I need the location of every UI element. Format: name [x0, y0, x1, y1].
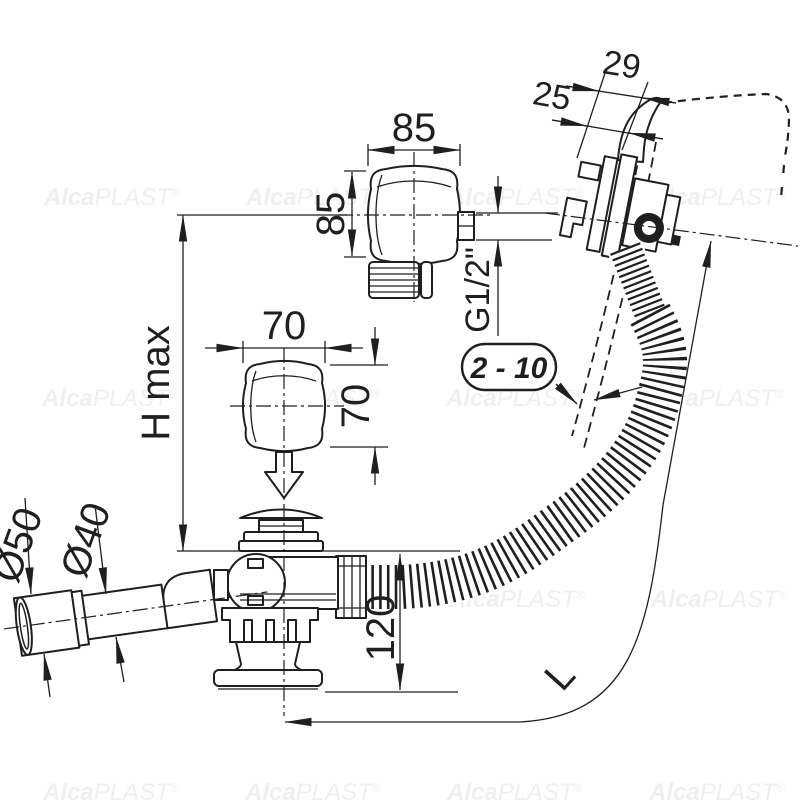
label-outlet-40: Ø40: [52, 497, 119, 583]
label-70-width: 70: [262, 304, 307, 348]
svg-text:AlcaPLAST®: AlcaPLAST®: [650, 586, 787, 613]
label-85-height: 85: [309, 192, 353, 237]
drain-assembly-side-view: [214, 510, 338, 690]
label-29: 29: [600, 43, 643, 86]
label-thread-size: G1/2": [459, 247, 497, 333]
outlet-elbow: [159, 570, 217, 629]
svg-text:AlcaPLAST®: AlcaPLAST®: [648, 779, 785, 800]
svg-text:AlcaPLAST®: AlcaPLAST®: [43, 184, 180, 211]
label-120: 120: [359, 595, 403, 662]
label-h-max: H max: [134, 325, 178, 441]
drain-castellated-nut: [222, 608, 318, 642]
drain-seal-flange: [239, 541, 323, 551]
tub-rim-hatch: [664, 94, 789, 198]
label-wall-thickness: 2 - 10: [470, 352, 548, 385]
label-85-width: 85: [392, 106, 437, 150]
svg-text:AlcaPLAST®: AlcaPLAST®: [447, 184, 584, 211]
technical-drawing-page: AlcaPLAST® AlcaPLAST® AlcaPLAST® AlcaPLA…: [0, 0, 800, 800]
drain-outlet-stub: [214, 570, 228, 600]
label-25: 25: [530, 74, 574, 118]
svg-text:AlcaPLAST®: AlcaPLAST®: [446, 779, 583, 800]
overflow-knob-pin: [421, 262, 432, 298]
drain-plug-cap: [240, 510, 322, 519]
label-hose-length: L: [536, 653, 584, 699]
drain-base-flange: [214, 670, 322, 686]
label-outlet-50: Ø50: [0, 502, 52, 588]
drain-lower-cup: [230, 642, 306, 672]
dimension-70-height: 70: [330, 327, 388, 485]
svg-text:AlcaPLAST®: AlcaPLAST®: [42, 779, 179, 800]
svg-text:AlcaPLAST®: AlcaPLAST®: [244, 779, 381, 800]
overflow-inlet-horn: [618, 98, 662, 162]
label-70-height: 70: [334, 384, 378, 429]
bath-drain-overflow-diagram: AlcaPLAST® AlcaPLAST® AlcaPLAST® AlcaPLA…: [0, 0, 800, 800]
